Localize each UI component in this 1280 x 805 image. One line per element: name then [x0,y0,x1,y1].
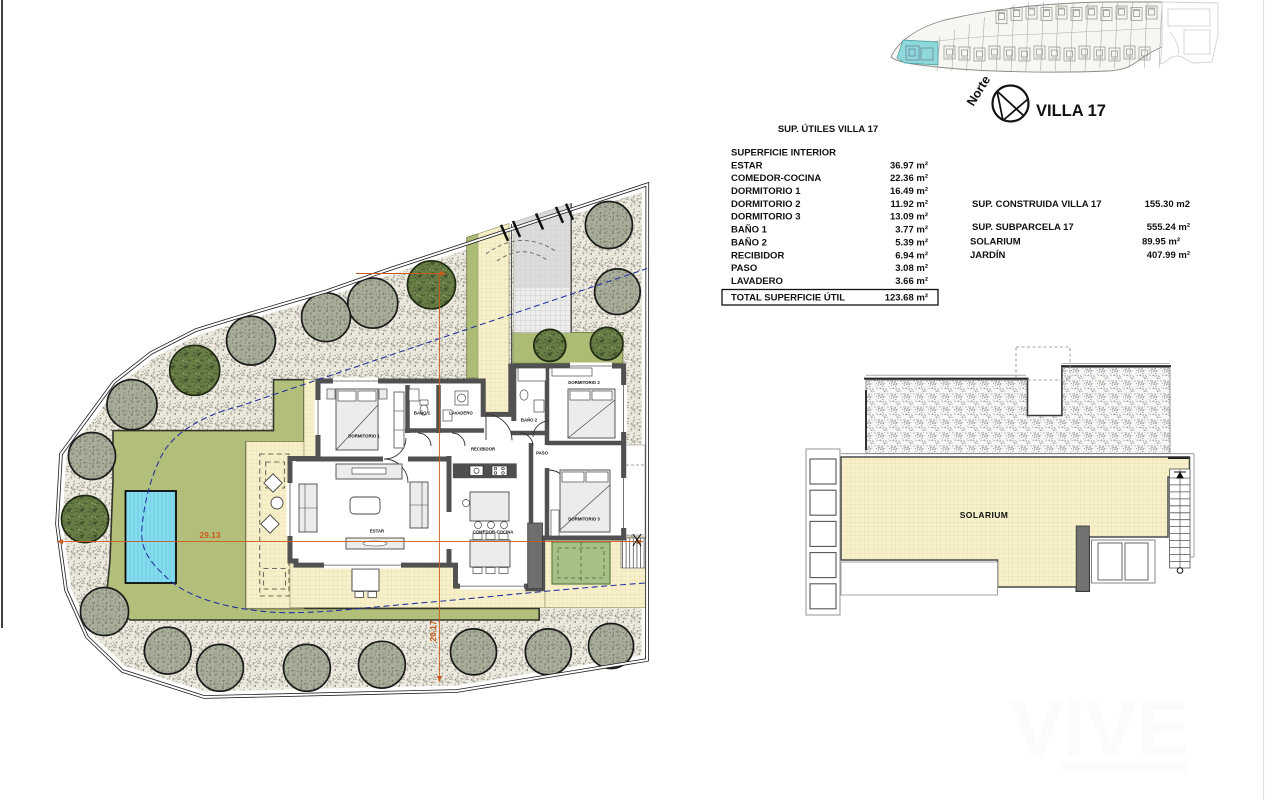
svg-text:155.30 m2: 155.30 m2 [1145,199,1190,210]
svg-text:11.92 m²: 11.92 m² [891,199,929,210]
svg-text:COMEDOR-COCINA: COMEDOR-COCINA [473,530,514,535]
svg-text:20.17: 20.17 [428,620,438,642]
svg-text:VILLA 17: VILLA 17 [1036,102,1106,120]
svg-text:SOLARIUM: SOLARIUM [960,510,1009,520]
svg-text:3.08 m²: 3.08 m² [895,263,928,274]
svg-text:SOLARIUM: SOLARIUM [970,237,1021,248]
svg-text:DORMITORIO 3: DORMITORIO 3 [731,212,801,223]
svg-text:LAVADERO: LAVADERO [731,276,783,287]
svg-text:3.77 m²: 3.77 m² [895,225,928,236]
svg-text:BAÑO 2: BAÑO 2 [731,237,767,248]
svg-text:BAÑO 2: BAÑO 2 [521,418,538,423]
svg-text:DORMITORIO 1: DORMITORIO 1 [348,434,380,439]
svg-text:VIVE: VIVE [1011,684,1189,772]
svg-text:PASO: PASO [731,263,757,274]
svg-text:13.09 m²: 13.09 m² [890,212,928,223]
svg-text:SUP. CONSTRUIDA VILLA 17: SUP. CONSTRUIDA VILLA 17 [972,199,1102,210]
svg-text:SUP. SUBPARCELA 17: SUP. SUBPARCELA 17 [972,222,1074,233]
svg-text:RECIBIDOR: RECIBIDOR [731,250,784,261]
svg-text:SUPERFICIE INTERIOR: SUPERFICIE INTERIOR [731,148,836,159]
svg-text:DORMITORIO 1: DORMITORIO 1 [731,186,801,197]
svg-text:16.49 m²: 16.49 m² [890,186,928,197]
svg-text:TOTAL SUPERFICIE ÚTIL: TOTAL SUPERFICIE ÚTIL [731,292,845,304]
svg-text:555.24 m²: 555.24 m² [1147,222,1190,233]
svg-text:BAÑO 1: BAÑO 1 [731,225,768,236]
svg-text:89.95 m²: 89.95 m² [1142,237,1180,248]
svg-text:LAVADERO: LAVADERO [449,411,473,416]
svg-text:36.97 m²: 36.97 m² [890,160,928,171]
svg-text:123.68 m²: 123.68 m² [885,293,928,304]
svg-text:RECIBIDOR: RECIBIDOR [471,447,496,452]
svg-text:SUP. ÚTILES VILLA 17: SUP. ÚTILES VILLA 17 [778,123,878,135]
svg-text:BAÑO 1: BAÑO 1 [414,411,431,416]
svg-text:5.39 m²: 5.39 m² [895,237,928,248]
svg-text:6.94 m²: 6.94 m² [895,250,928,261]
svg-text:DORMITORIO 2: DORMITORIO 2 [568,380,600,385]
svg-text:DORMITORIO 3: DORMITORIO 3 [568,517,600,522]
svg-text:22.36 m²: 22.36 m² [890,173,928,184]
svg-text:ESTAR: ESTAR [370,529,385,534]
svg-text:ESTAR: ESTAR [731,160,763,171]
svg-text:JARDÍN: JARDÍN [970,250,1006,261]
svg-text:COMEDOR-COCINA: COMEDOR-COCINA [731,173,821,184]
svg-text:PASO: PASO [536,451,549,456]
svg-text:DORMITORIO 2: DORMITORIO 2 [731,199,801,210]
svg-text:29.13: 29.13 [199,530,221,540]
svg-text:3.66 m²: 3.66 m² [895,276,928,287]
svg-text:407.99 m²: 407.99 m² [1147,250,1190,261]
